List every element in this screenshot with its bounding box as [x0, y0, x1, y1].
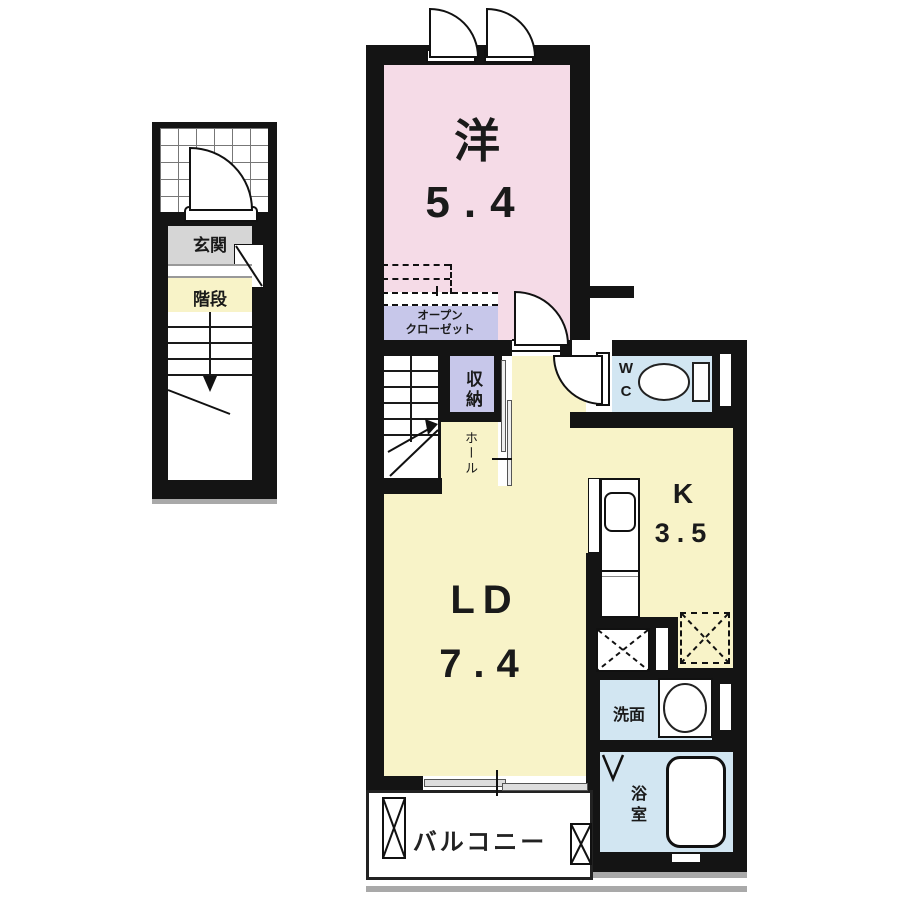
label-western-room: 洋: [384, 105, 570, 171]
bathtub-icon: [666, 756, 726, 848]
wall: [586, 852, 747, 872]
floor-plan: 洋 5.4 LD 7.4 K 3.5 玄関 階段 オープン クローゼット 収納 …: [0, 0, 900, 900]
western-room-doorway: [512, 339, 560, 352]
open-closet-shelf: [382, 292, 498, 306]
wall: [733, 340, 747, 872]
wall: [560, 340, 572, 356]
wall: [586, 740, 747, 752]
bathroom-drain-notch: [672, 854, 700, 862]
wall: [570, 412, 747, 428]
closet-hanger-dash: [382, 264, 450, 266]
hall-sliding-door: [507, 400, 512, 486]
refrigerator-space-icon: [680, 612, 730, 664]
label-bathroom: 浴室: [624, 770, 648, 842]
balcony-sliding-door: [502, 783, 588, 791]
wall: [438, 422, 441, 478]
kitchen-counter-back: [588, 478, 600, 553]
wall: [578, 286, 634, 298]
label-storage: 収納: [460, 362, 485, 418]
wall: [366, 45, 590, 65]
counter-divider: [602, 576, 638, 577]
stair-divider-line: [410, 356, 412, 442]
label-living-dining: LD: [384, 578, 586, 623]
entrance-step: [168, 264, 252, 278]
closet-hanger-dash: [450, 264, 452, 294]
wall: [366, 478, 442, 494]
ground-shadow-line: [152, 499, 277, 504]
tiled-porch: [160, 128, 268, 212]
counter-divider: [602, 570, 638, 572]
sliding-door-meeting-mark: [496, 770, 498, 796]
label-stairs: 階段: [168, 285, 252, 310]
label-open-closet-line2: クローゼット: [382, 321, 498, 337]
sliding-door-meeting-mark: [492, 458, 512, 460]
casement-window-sill: [484, 49, 534, 63]
closet-hanger-dash: [436, 286, 438, 296]
entrance-door-leaf: [184, 206, 258, 222]
room-living-dining: [384, 486, 586, 776]
label-living-dining-area: 7.4: [384, 642, 586, 687]
label-kitchen-area: 3.5: [634, 518, 734, 549]
washroom-window: [720, 684, 731, 730]
closet-hanger-dash: [382, 278, 450, 280]
label-toilet: WC: [616, 357, 636, 404]
hall-sliding-door: [501, 360, 506, 452]
casement-window-sill: [426, 49, 476, 63]
kitchen-sink-icon: [604, 492, 636, 532]
label-kitchen: K: [650, 478, 716, 510]
label-hall: ホール: [461, 422, 480, 484]
wall-opening: [656, 628, 668, 670]
wall: [366, 45, 384, 790]
label-western-area: 5.4: [384, 178, 570, 228]
label-washroom: 洗面: [600, 701, 658, 725]
washer-space-icon: [596, 628, 650, 672]
label-entrance: 玄関: [168, 231, 252, 256]
ground-shadow-line: [593, 872, 747, 878]
stair-direction-line: [209, 312, 211, 382]
under-stair-space: [168, 378, 252, 480]
toilet-door-leaf: [596, 352, 610, 406]
vanity-unit-icon: [658, 678, 713, 738]
toilet-tank-icon: [692, 362, 710, 402]
toilet-window: [720, 354, 731, 406]
ground-shadow-line: [366, 886, 747, 892]
balcony-sliding-door: [424, 779, 506, 787]
wall: [366, 340, 512, 356]
label-balcony: バルコニー: [390, 822, 570, 857]
